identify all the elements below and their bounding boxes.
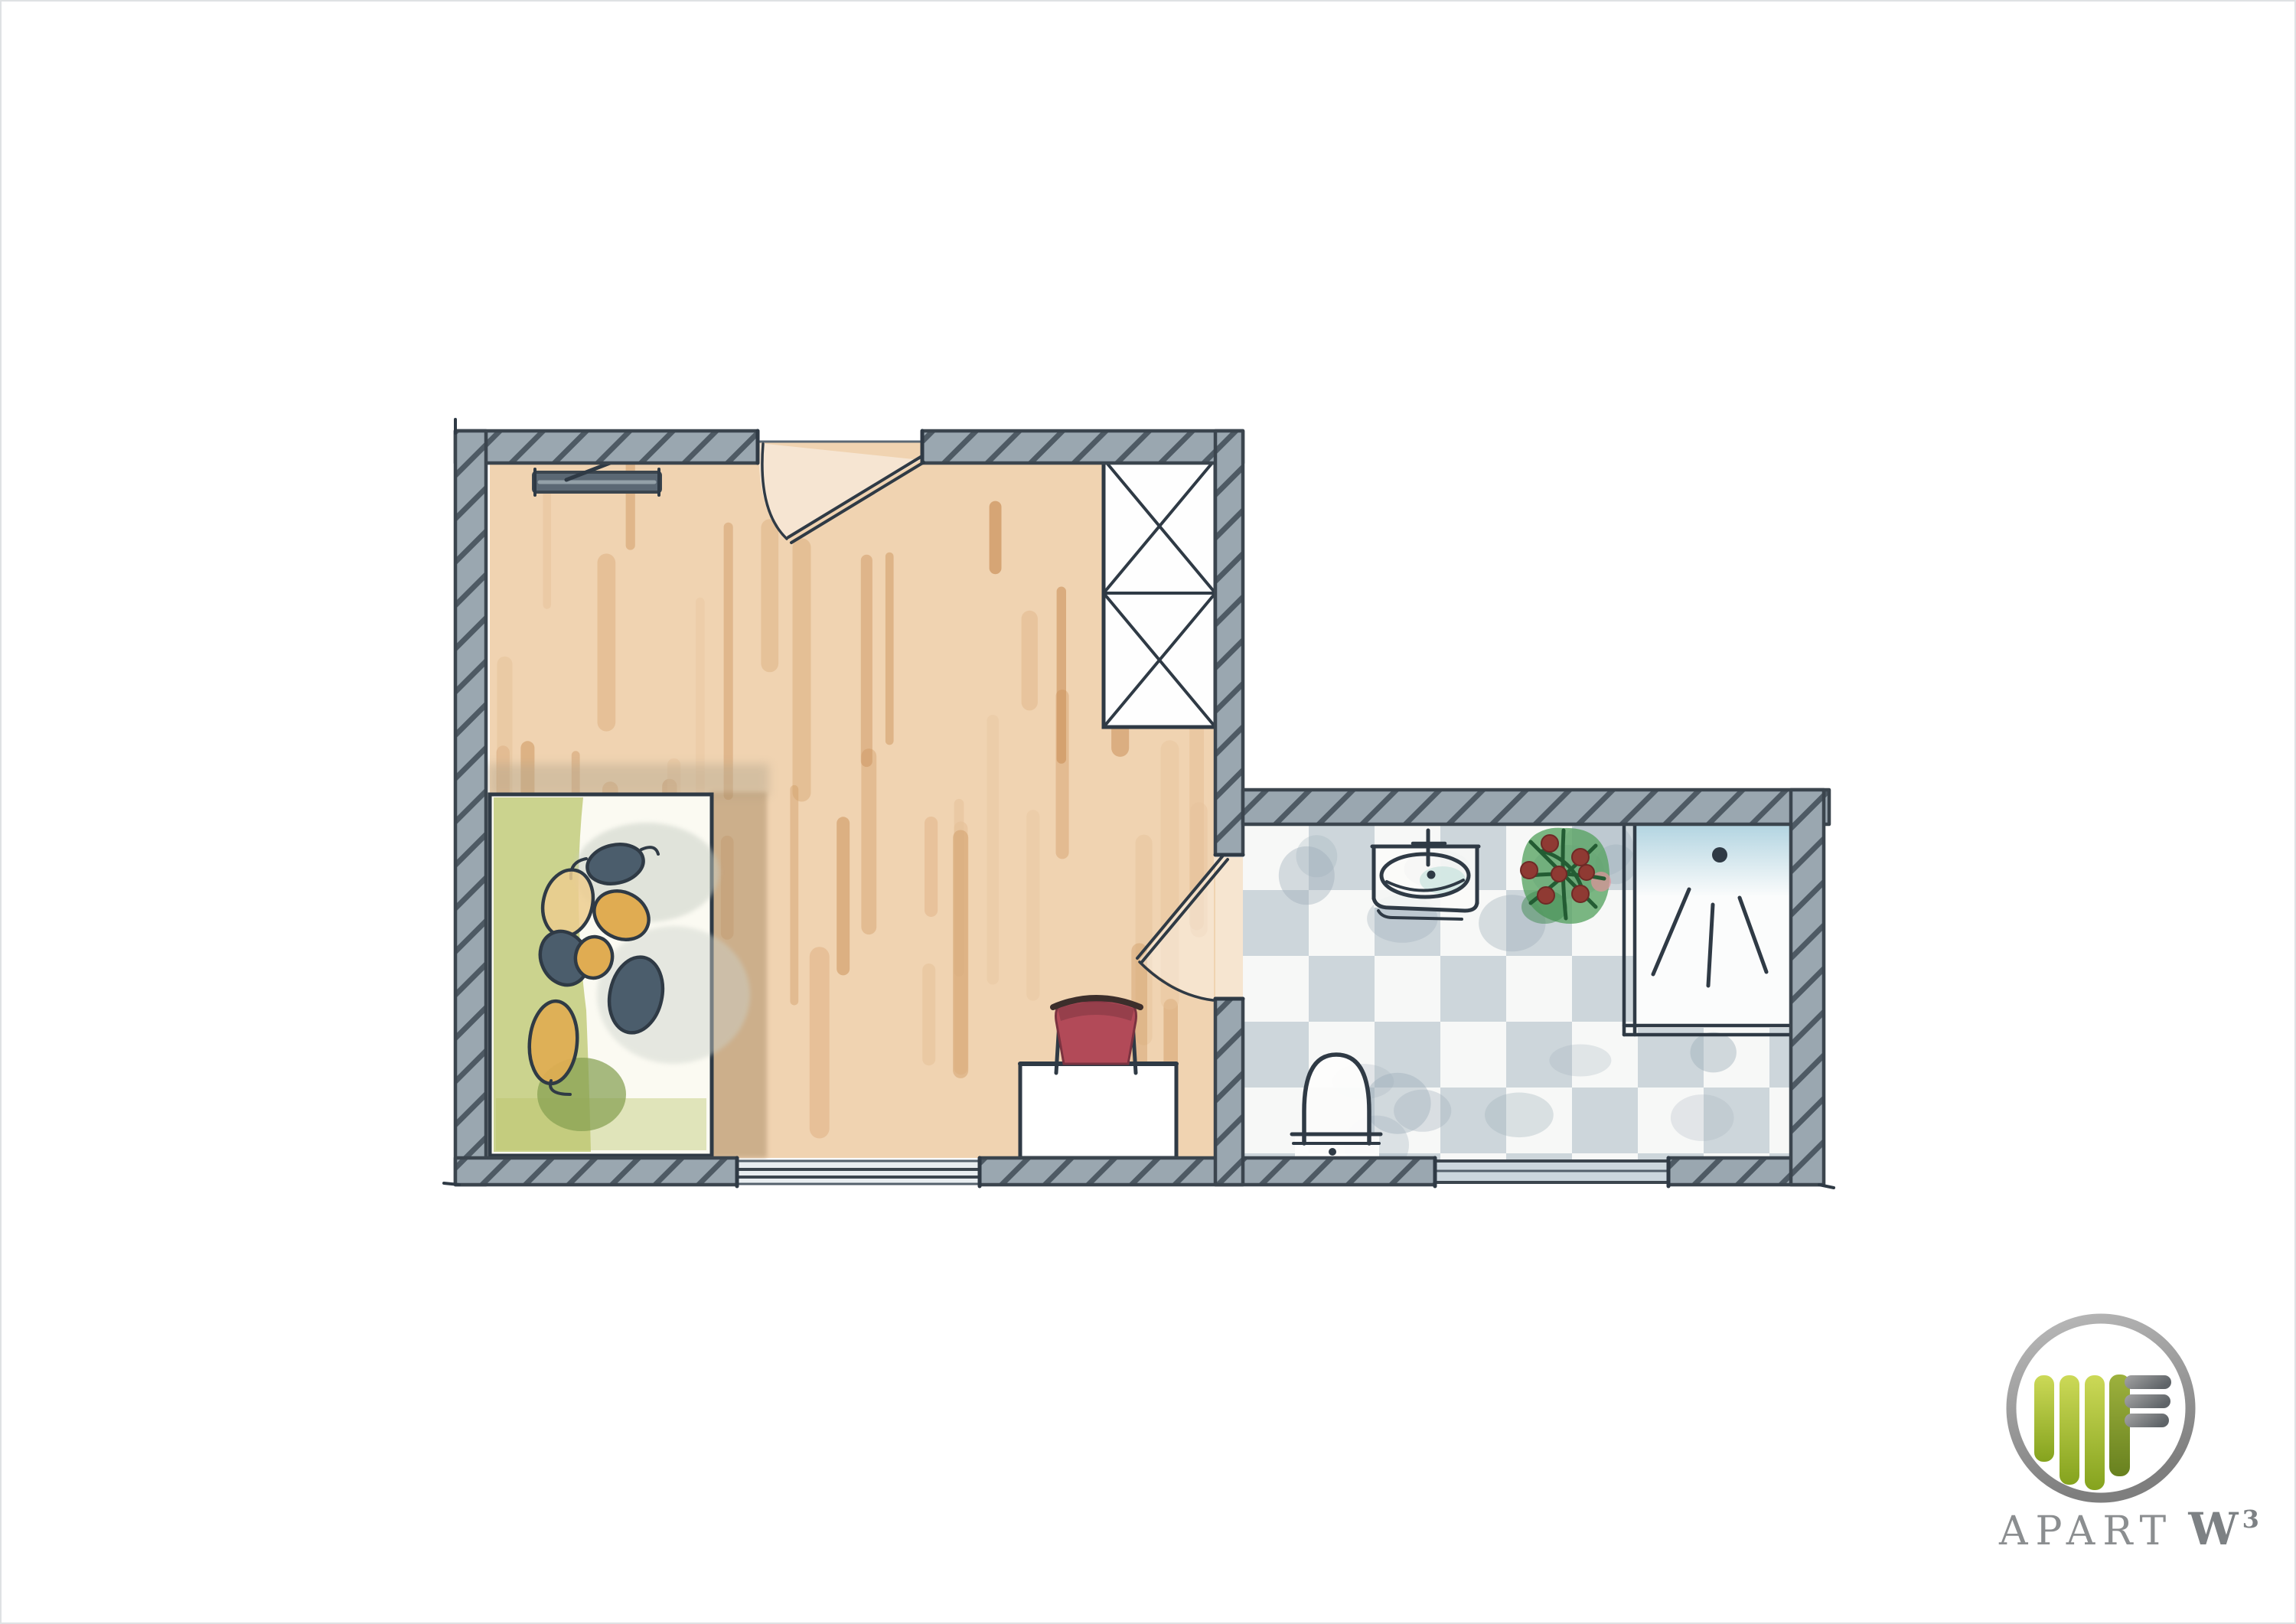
plant — [1521, 828, 1611, 924]
window-bathroom — [1435, 1158, 1668, 1186]
door-threshold — [1215, 857, 1243, 999]
wall-right-lower — [1215, 999, 1243, 1185]
wall-bathroom-top — [1243, 790, 1829, 824]
apartment-floor-plan — [444, 419, 1834, 1188]
logo-brand-text: APART — [1998, 1508, 2174, 1554]
bed-shadow-top — [488, 764, 769, 796]
wall-bathroom-right — [1791, 790, 1824, 1185]
wall-bottom-middle-segment — [980, 1158, 1435, 1185]
stool — [1053, 998, 1140, 1073]
window-main-room — [737, 1158, 980, 1186]
floor-plan-canvas: APART W 3 — [0, 0, 2296, 1624]
desk — [1020, 1064, 1176, 1158]
shower — [1624, 824, 1791, 1035]
main-room — [488, 442, 1223, 1158]
bathroom — [1215, 819, 1791, 1174]
wall-top-left-segment — [455, 431, 758, 463]
page: APART W 3 — [0, 0, 2296, 1624]
shower-head — [1712, 847, 1727, 863]
wall-bottom-left-segment — [455, 1158, 737, 1185]
wall-top-right-segment — [922, 431, 1243, 463]
brand-logo: APART W 3 — [1998, 1319, 2259, 1555]
wall-right-upper — [1215, 431, 1243, 855]
bed — [490, 794, 750, 1156]
wardrobe — [1104, 459, 1215, 727]
logo-wordmark: APART W 3 — [1998, 1503, 2259, 1555]
logo-mark-superscript: 3 — [2242, 1505, 2259, 1534]
wall-left — [455, 431, 486, 1185]
logo-mark-text: W — [2187, 1503, 2239, 1555]
